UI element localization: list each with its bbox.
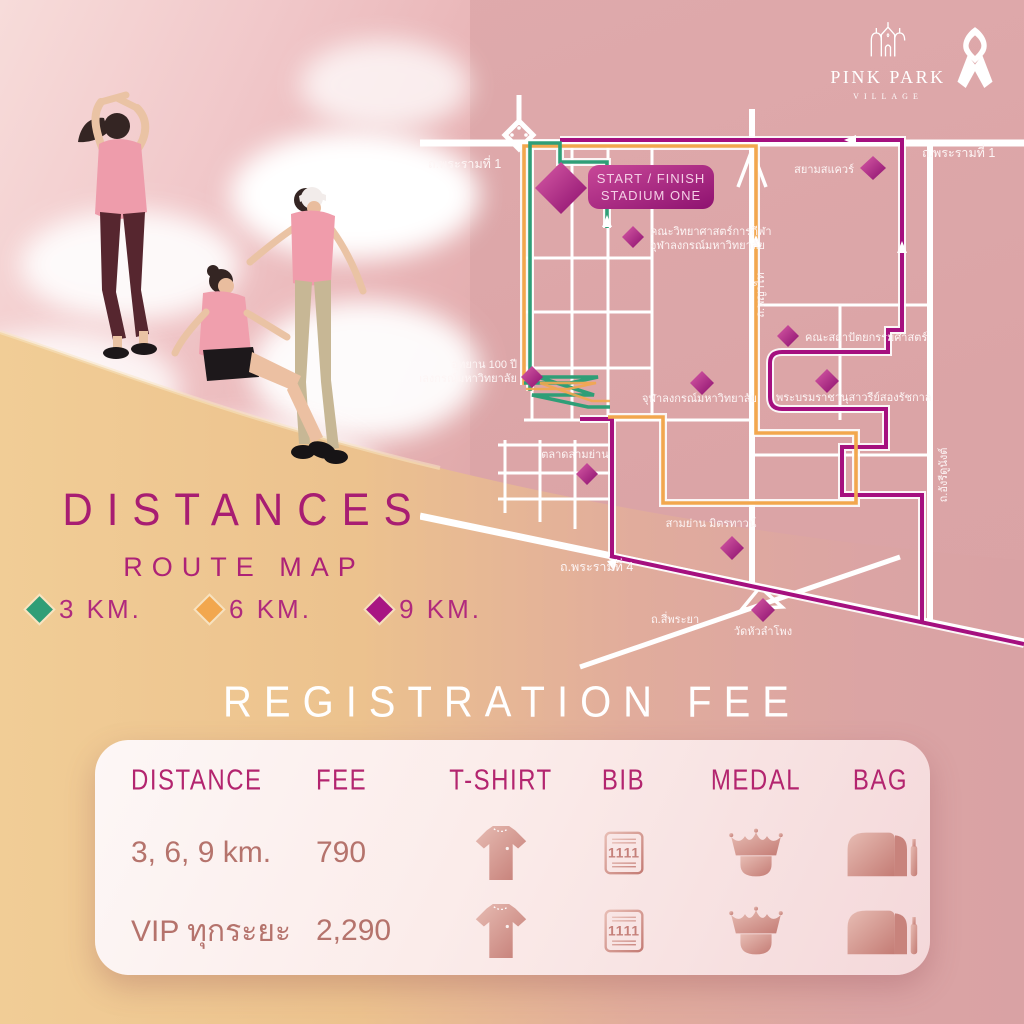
marker-monument: [815, 369, 839, 393]
diamond-3km-icon: [26, 596, 53, 623]
photo-runners: [0, 0, 470, 545]
legend-6km-label: 6 KM.: [229, 594, 312, 625]
tshirt-icon: [474, 824, 528, 882]
row1-medal: [681, 826, 831, 881]
medal-crown-icon: [723, 904, 789, 959]
label-wat-hua-lamphong: วัดหัวลำโพง: [734, 624, 792, 638]
label-samyan-mitrtown: สามย่าน มิตรทาวน์: [666, 517, 757, 530]
marker-start-finish: [535, 162, 587, 214]
row1-tshirt: [436, 824, 566, 882]
event-poster: 1111: [0, 0, 1024, 1024]
runner-sitting: [175, 265, 338, 462]
row1-bag: [831, 827, 930, 879]
label-park100-2: จุฬาลงกรณ์มหาวิทยาลัย: [420, 372, 517, 385]
brand-subtitle: VILLAGE: [828, 92, 948, 101]
route-map: START / FINISH STADIUM ONE ถ.พระรามที่ 1…: [420, 95, 1024, 675]
marker-siam-square: [860, 156, 886, 180]
row2-medal: [681, 904, 831, 959]
bib-icon: [602, 827, 646, 879]
label-rama1-right: ถ.พระรามที่ 1: [922, 144, 995, 160]
row2-distance: VIP ทุกระยะ: [131, 908, 316, 955]
col-header-fee: FEE: [316, 764, 436, 797]
registration-fee-title: REGISTRATION FEE: [0, 678, 1024, 728]
marker-talat-samyan: [576, 463, 598, 485]
col-header-bag: BAG: [831, 764, 930, 797]
row1-distance: 3, 6, 9 km.: [131, 836, 316, 870]
label-park100-1: อุทยาน 100 ปี: [452, 358, 517, 371]
pink-ribbon-icon: [952, 24, 998, 95]
start-finish-box: START / FINISH STADIUM ONE: [588, 165, 714, 209]
label-henri-dunant: ถ.อังรีดูนังต์: [937, 448, 950, 503]
marker-chula: [690, 371, 714, 395]
label-talat-samyan: ตลาดสามย่าน: [541, 449, 609, 461]
distances-title: DISTANCES: [18, 484, 470, 536]
label-rama4: ถ.พระรามที่ 4: [560, 558, 633, 574]
label-monument: พระบรมราชานุสาวรีย์สองรัชกาล: [776, 391, 932, 404]
marker-samyan-mitrtown: [720, 536, 744, 560]
row1-fee: 790: [316, 836, 436, 870]
bib-icon: [602, 905, 646, 957]
marker-sport-science: [622, 226, 644, 248]
row1-bib: [566, 827, 681, 879]
label-siam-square: สยามสแควร์: [794, 163, 854, 176]
bag-icon: [842, 905, 920, 957]
legend-9km-label: 9 KM.: [399, 594, 482, 625]
bag-icon: [842, 827, 920, 879]
legend-item-9km: 9 KM.: [370, 594, 482, 625]
tshirt-icon: [474, 902, 528, 960]
marker-architecture: [777, 325, 799, 347]
col-header-medal: MEDAL: [681, 764, 831, 797]
col-header-distance: DISTANCE: [131, 764, 316, 797]
label-sport-science-1: คณะวิทยาศาสตร์การกีฬา: [650, 225, 772, 238]
label-chula: จุฬาลงกรณ์มหาวิทยาลัย: [642, 392, 757, 405]
legend-item-6km: 6 KM.: [200, 594, 312, 625]
col-header-bib: BIB: [566, 764, 681, 797]
start-finish-line2: STADIUM ONE: [601, 188, 701, 203]
runner-left: [78, 95, 157, 359]
row2-bag: [831, 905, 930, 957]
label-rama1-left: ถ.พระรามที่ 1: [428, 155, 501, 171]
row2-bib: [566, 905, 681, 957]
route-legend: 3 KM. 6 KM. 9 KM.: [30, 594, 482, 625]
label-sport-science-2: จุฬาลงกรณ์มหาวิทยาลัย: [650, 239, 765, 252]
distances-block: DISTANCES ROUTE MAP: [18, 486, 470, 583]
row2-fee: 2,290: [316, 914, 436, 948]
route-map-subtitle: ROUTE MAP: [18, 552, 470, 583]
registration-fee-table: DISTANCE FEE T-SHIRT BIB MEDAL BAG 3, 6,…: [95, 740, 930, 975]
row2-tshirt: [436, 902, 566, 960]
medal-crown-icon: [723, 826, 789, 881]
diamond-9km-icon: [366, 596, 393, 623]
castle-icon: [862, 18, 914, 58]
map-labels: ถ.พระรามที่ 1 ถ.พระรามที่ 1 สยามสแควร์ ค…: [420, 144, 995, 638]
legend-3km-label: 3 KM.: [59, 594, 142, 625]
brand-logo: PINK PARK VILLAGE: [828, 18, 948, 101]
start-finish-line1: START / FINISH: [597, 171, 706, 186]
label-phayathai: ถ.พญาไท: [754, 272, 767, 317]
label-si-phraya: ถ.สี่พระยา: [651, 611, 699, 626]
diamond-6km-icon: [196, 596, 223, 623]
col-header-tshirt: T-SHIRT: [436, 764, 566, 797]
brand-title: PINK PARK: [828, 67, 948, 88]
legend-item-3km: 3 KM.: [30, 594, 142, 625]
label-architecture: คณะสถาปัตยกรรมศาสตร์: [805, 331, 927, 344]
